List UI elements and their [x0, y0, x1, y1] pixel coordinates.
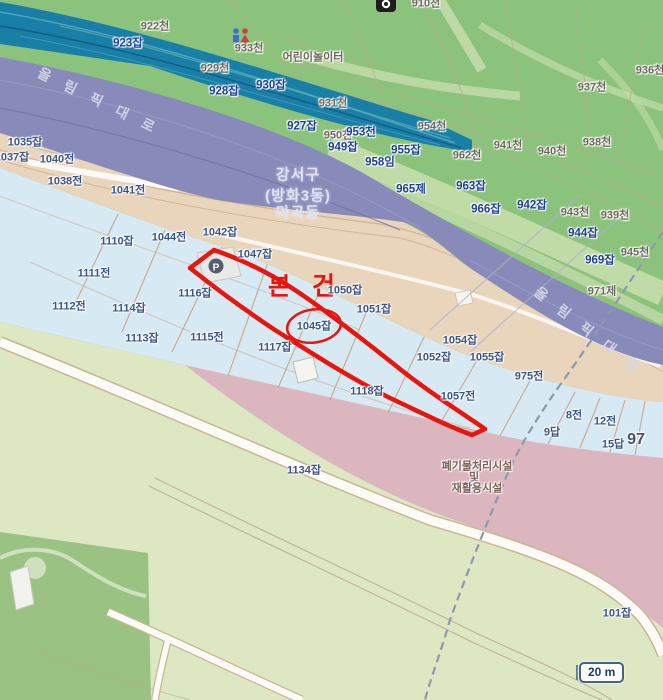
cctv-icon — [376, 0, 396, 12]
parking-icon: P — [209, 259, 224, 274]
scale-bar-tick — [576, 665, 578, 680]
scale-bar-value: 20 m — [579, 662, 624, 683]
parking-letter: P — [213, 263, 220, 274]
map-canvas[interactable]: P 본 건 강서구 (방화3동) 마곡동 폐기물처리시설 및 재활용시설 922… — [0, 0, 663, 700]
scale-bar: 20 m — [576, 662, 624, 683]
map-base-layers: P — [0, 0, 663, 700]
